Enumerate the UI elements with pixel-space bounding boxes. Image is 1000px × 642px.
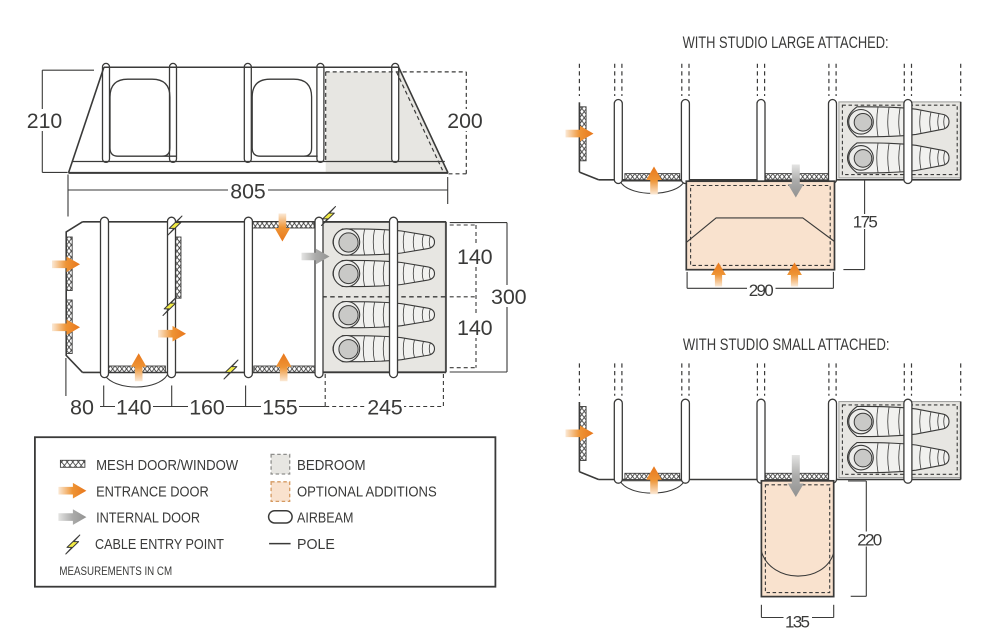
svg-text:245: 245	[367, 396, 403, 420]
svg-text:80: 80	[70, 396, 94, 420]
svg-text:MEASUREMENTS IN CM: MEASUREMENTS IN CM	[59, 564, 172, 578]
svg-text:INTERNAL DOOR: INTERNAL DOOR	[96, 510, 200, 527]
svg-text:300: 300	[491, 285, 527, 309]
svg-text:BEDROOM: BEDROOM	[297, 457, 366, 474]
svg-text:MESH DOOR/WINDOW: MESH DOOR/WINDOW	[96, 457, 239, 474]
svg-text:220: 220	[857, 530, 882, 549]
svg-text:210: 210	[27, 109, 63, 133]
svg-text:155: 155	[262, 396, 298, 420]
svg-text:140: 140	[457, 316, 493, 340]
svg-text:200: 200	[447, 109, 483, 133]
svg-text:290: 290	[749, 281, 774, 300]
svg-text:AIRBEAM: AIRBEAM	[297, 510, 353, 527]
svg-text:135: 135	[785, 612, 810, 631]
svg-text:POLE: POLE	[297, 536, 335, 553]
svg-text:WITH STUDIO SMALL ATTACHED:: WITH STUDIO SMALL ATTACHED:	[683, 336, 890, 354]
svg-text:805: 805	[230, 180, 266, 204]
svg-text:175: 175	[853, 213, 878, 232]
svg-text:140: 140	[457, 245, 493, 269]
svg-text:140: 140	[116, 396, 152, 420]
svg-text:ENTRANCE DOOR: ENTRANCE DOOR	[96, 483, 209, 500]
svg-text:OPTIONAL ADDITIONS: OPTIONAL ADDITIONS	[297, 483, 437, 500]
svg-text:160: 160	[189, 396, 225, 420]
svg-text:WITH STUDIO LARGE ATTACHED:: WITH STUDIO LARGE ATTACHED:	[683, 34, 889, 52]
svg-text:CABLE ENTRY POINT: CABLE ENTRY POINT	[95, 536, 224, 553]
